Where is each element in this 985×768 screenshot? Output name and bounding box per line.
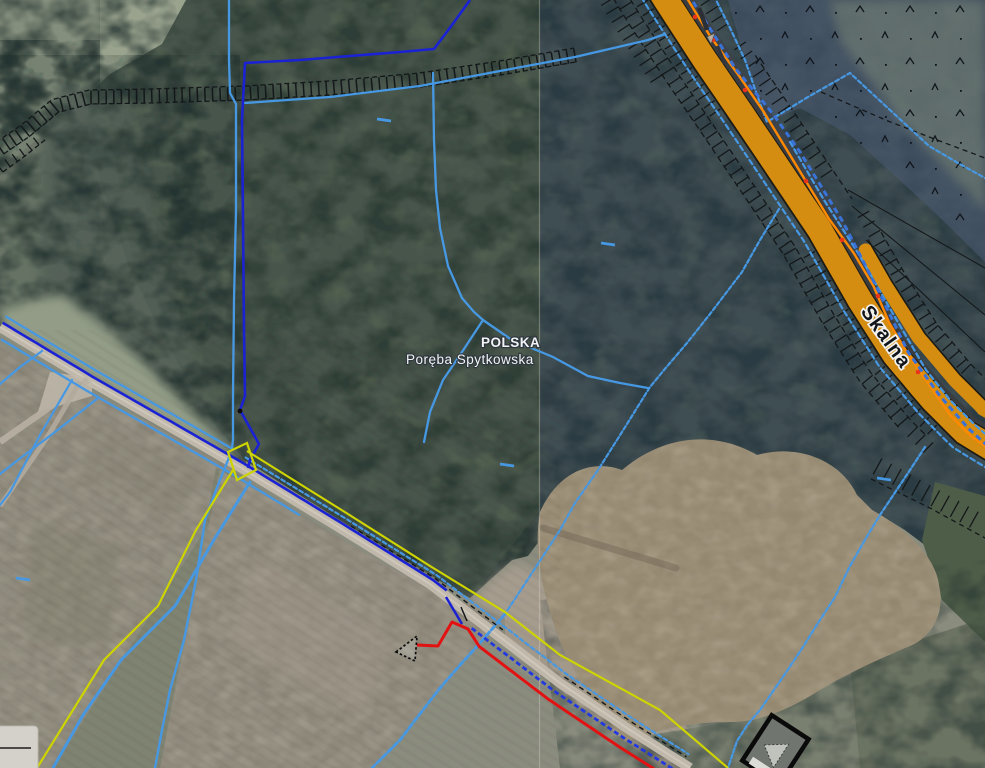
svg-text:Poręba Spytkowska: Poręba Spytkowska bbox=[406, 352, 534, 367]
svg-text:POLSKA: POLSKA bbox=[481, 335, 540, 350]
